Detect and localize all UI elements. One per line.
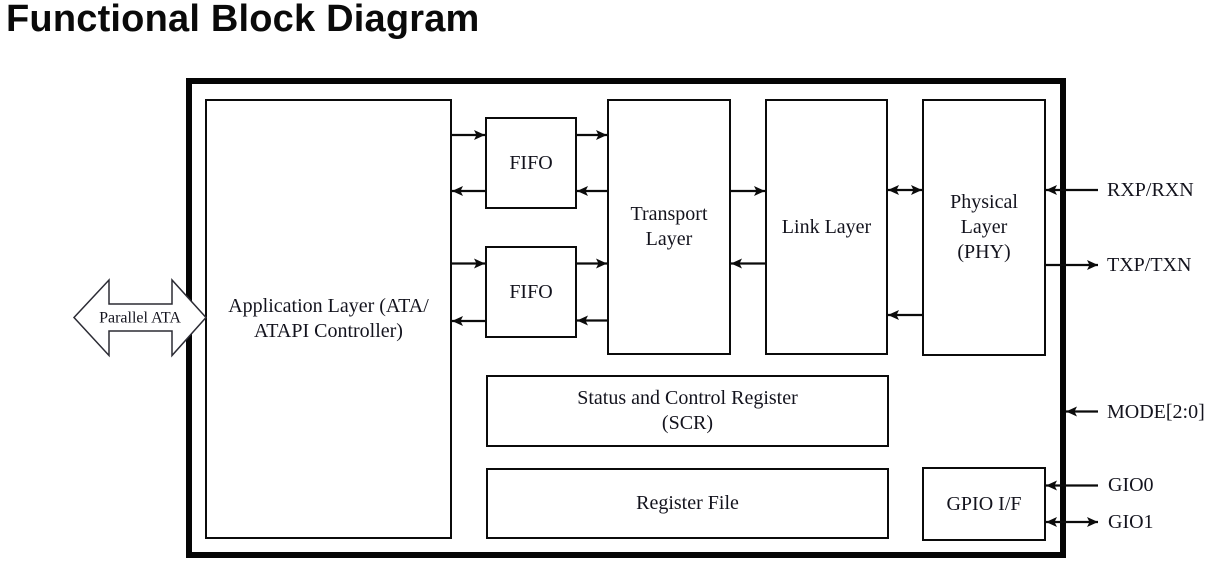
svg-text:Parallel ATA: Parallel ATA xyxy=(99,310,181,327)
